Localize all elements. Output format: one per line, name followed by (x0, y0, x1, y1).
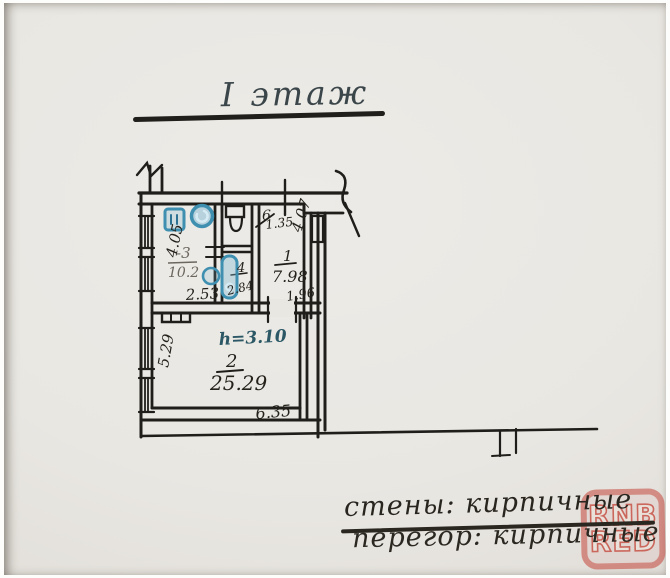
room2-number: 2 (225, 351, 237, 372)
ceiling-height-note: h=3.10 (218, 326, 287, 350)
room3-area: 10.2 (168, 265, 199, 281)
dim-room2-width: 6.35 (255, 401, 292, 423)
room3-number: -3 (176, 244, 191, 262)
stove-burner-icon (192, 206, 213, 227)
wall-details (141, 206, 597, 456)
floor-plan-drawing: 4.05 -3 10.2 2.53 6 1.35 4 2.84 4.07 1 7… (0, 0, 670, 578)
dim-room2-depth: 5.29 (154, 332, 178, 368)
dim-room3-width: 2.53 (184, 284, 219, 304)
room1-area: 7.98 (272, 267, 308, 286)
room2-area: 25.29 (209, 371, 268, 395)
photo-of-floor-plan: I этаж RNB RED стены: кирпичные перегор:… (0, 0, 670, 578)
toilet-icon (226, 206, 244, 231)
basin-icon (203, 268, 219, 284)
room4-number: 4 (236, 261, 245, 276)
wall-lines (137, 163, 359, 437)
room1-number: 1 (283, 247, 293, 265)
